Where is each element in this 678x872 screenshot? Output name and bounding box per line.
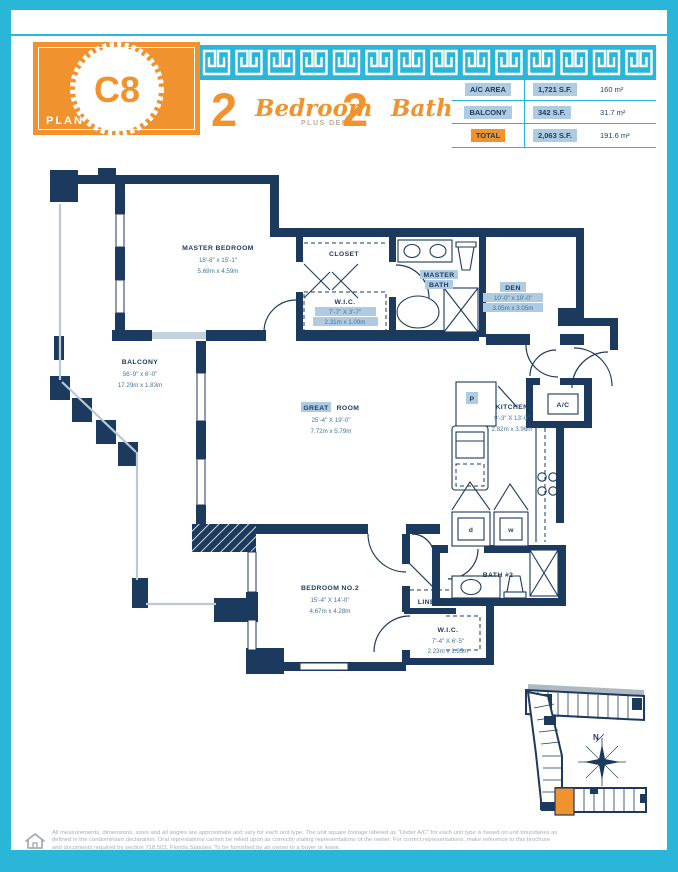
disclaimer-line-3: and documents required by section 718.50… [52, 845, 664, 852]
frame-left [0, 0, 11, 872]
greek-key-pattern [200, 45, 656, 80]
wic2-dim-m: 2.23m x 1.95m [428, 648, 469, 655]
wic2-label: W.I.C. [438, 627, 459, 634]
balcony-sf: 342 S.F. [533, 106, 571, 119]
core-block-6 [640, 794, 646, 803]
balcony-dim-m: 17.29m x 1.83m [118, 382, 162, 389]
den-dim-ft: 10'-0" x 10'-0" [494, 295, 532, 302]
pantry-label: P [470, 396, 475, 403]
bath2-label: BATH #2 [483, 572, 514, 579]
disclaimer: All measurements, dimensions, sizes and … [52, 830, 664, 852]
wic1-dim-ft: 7'-7" X 3'-7" [329, 309, 361, 316]
core-block-5 [590, 788, 598, 794]
ac-closet-label: A/C [557, 402, 570, 409]
master-bedroom-label: MASTER BEDROOM [182, 245, 254, 252]
floor-plan: MASTER BEDROOM 18'-8" x 15'-1" 5.69m x 4… [40, 165, 640, 697]
wic1-label: W.I.C. [335, 299, 356, 306]
compass-rose: N [578, 733, 626, 786]
north-label: N [593, 733, 599, 742]
wic2-dim-ft: 7'-4" X 6'-5" [432, 638, 464, 645]
bath-count: 2 [342, 86, 368, 133]
sliding-glass-door [152, 332, 206, 339]
disclaimer-line-2: defined in the condominium declaration. … [52, 837, 664, 844]
master-bedroom-dim-ft: 18'-8" x 15'-1" [199, 257, 237, 264]
bedroom2-dim-m: 4.67m x 4.28m [310, 608, 351, 615]
table-row-ac-area: A/C AREA 1,721 S.F. 160 m² [452, 78, 656, 101]
disclaimer-line-1: All measurements, dimensions, sizes and … [52, 830, 664, 837]
balcony-metric: 31.7 m² [600, 108, 656, 117]
plan-badge: PLAN C8 [33, 42, 200, 135]
greek-key-band [200, 45, 656, 80]
bath-label: Bath [391, 95, 453, 122]
core-block-3 [544, 716, 556, 725]
balcony-label: BALCONY [464, 106, 511, 119]
total-label: TOTAL [471, 129, 505, 142]
header-rule [11, 34, 667, 36]
ac-area-sf: 1,721 S.F. [533, 83, 577, 96]
kitchen-dim-m: 2.82m x 3.96m [492, 426, 533, 433]
frame-bottom [0, 850, 678, 872]
bedroom2-label: BEDROOM NO.2 [301, 585, 359, 592]
great-room-label-2: ROOM [337, 405, 360, 412]
kitchen-dim-ft: 9'-3" X 13'-0" [494, 415, 530, 422]
plan-seal: C8 [68, 40, 166, 138]
brochure-page: PLAN C8 2 Bedroom PLUS DEN 2 Bath A/C AR… [0, 0, 678, 872]
master-bedroom-dim-m: 5.69m x 4.59m [198, 268, 239, 275]
master-bath-label-1: MASTER [423, 272, 454, 279]
table-row-total: TOTAL 2,063 S.F. 191.6 m² [452, 124, 656, 147]
total-metric: 191.6 m² [600, 131, 656, 140]
dryer-label: d [469, 527, 474, 534]
highlighted-unit [555, 788, 574, 815]
total-sf: 2,063 S.F. [533, 129, 577, 142]
linen-label: LINEN [418, 599, 440, 606]
area-table: A/C AREA 1,721 S.F. 160 m² BALCONY 342 S… [452, 77, 656, 148]
wic1-dim-m: 2.31m x 1.09m [325, 319, 366, 326]
frame-top [0, 0, 678, 10]
bedroom2-dim-ft: 15'-4" X 14'-0" [310, 597, 349, 604]
great-room-dim-ft: 25'-4" X 19'-0" [311, 417, 350, 424]
master-bath-label-2: BATH [429, 282, 449, 289]
table-row-balcony: BALCONY 342 S.F. 31.7 m² [452, 101, 656, 124]
hatched-wall [192, 524, 256, 552]
great-room-dim-m: 7.72m x 5.79m [311, 428, 352, 435]
plan-code: C8 [94, 69, 140, 110]
washer-label: w [507, 527, 514, 534]
kitchen-label: KITCHEN [495, 404, 528, 411]
closet-label: CLOSET [329, 251, 359, 258]
ac-area-metric: 160 m² [600, 85, 656, 94]
den-dim-m: 3.05m x 3.05m [493, 305, 534, 312]
bedroom-count: 2 [211, 86, 237, 133]
den-label: DEN [505, 285, 521, 292]
balcony-dim-ft: 56'-9" x 6'-0" [123, 371, 158, 378]
balcony-label: BALCONY [122, 359, 158, 366]
great-room-label-1: GREAT [303, 405, 329, 412]
ac-area-label: A/C AREA [465, 83, 511, 96]
house-icon [22, 831, 48, 851]
core-block-2 [632, 698, 642, 710]
site-key-plan: N [498, 676, 670, 848]
